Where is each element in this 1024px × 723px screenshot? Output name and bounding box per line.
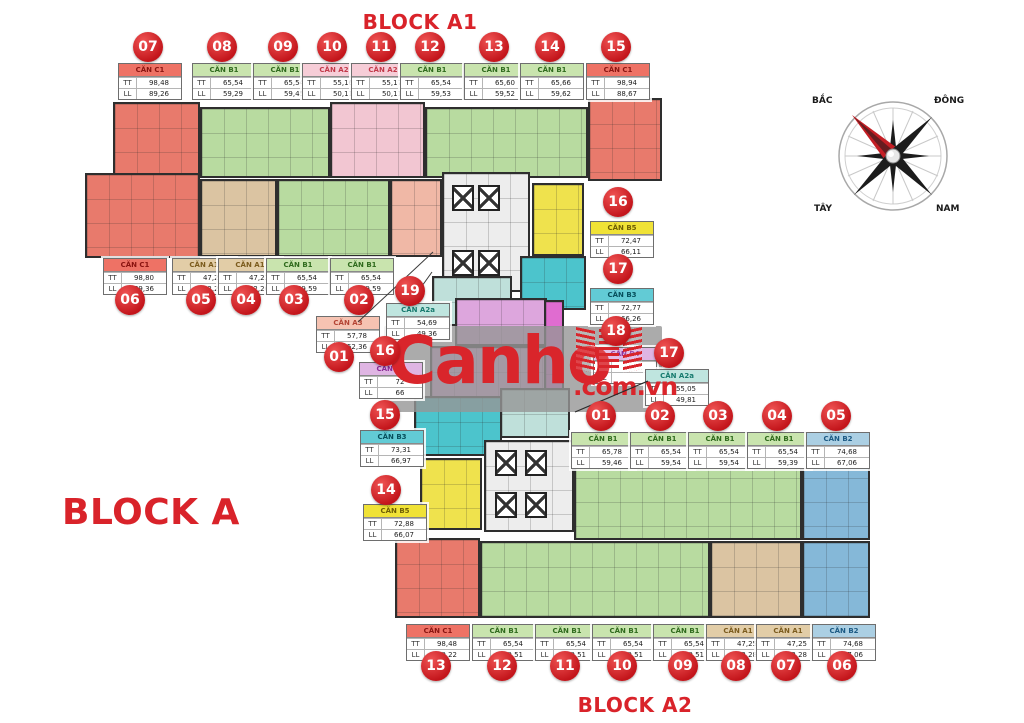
tt-label: TT [757, 639, 775, 649]
ll-row: LL67,06 [807, 457, 869, 468]
unit-number-badge-a1-05: 05 [186, 285, 216, 315]
ll-label: LL [572, 458, 590, 468]
ll-label: LL [748, 458, 766, 468]
unit-name: CĂN A3 [317, 317, 379, 330]
ll-value: 59,46 [590, 458, 634, 468]
apartment-cluster-b5 [532, 183, 584, 256]
tt-value: 65,66 [539, 78, 583, 88]
unit-number-badge-a1-15: 15 [601, 32, 631, 62]
block-a1-title: BLOCK A1 [340, 10, 500, 34]
unit-number-badge-a1-14: 14 [535, 32, 565, 62]
apartment-cluster-a2 [330, 102, 425, 178]
tt-row: TT65,78 [572, 446, 634, 457]
unit-table-a1-08: CĂN B1TT65,54LL59,29 [192, 63, 256, 100]
tt-label: TT [689, 447, 707, 457]
tt-row: TT57,78 [317, 330, 379, 341]
unit-number-badge-a2-02: 02 [645, 401, 675, 431]
tt-row: TT73,31 [361, 444, 423, 455]
unit-name: CĂN B1 [521, 64, 583, 77]
tt-row: TT98,80 [104, 272, 166, 283]
logo-slab [576, 327, 595, 373]
apartment-cluster-b2 [802, 541, 870, 618]
tt-row: TT98,48 [407, 638, 469, 649]
ll-label: LL [631, 458, 649, 468]
unit-number-badge-a2-08: 08 [721, 651, 751, 681]
compass-east-label: ĐÔNG [934, 96, 964, 106]
elevator-shaft [452, 185, 474, 211]
tt-row: TT65,54 [473, 638, 535, 649]
unit-name: CĂN C1 [119, 64, 181, 77]
apartment-cluster-b1 [277, 179, 390, 257]
unit-table-a1-16: CĂN B5TT72,47LL66,11 [590, 221, 654, 258]
unit-number-badge-a2-11: 11 [550, 651, 580, 681]
apartment-cluster-b1 [200, 107, 330, 178]
tt-label: TT [364, 519, 382, 529]
ll-label: LL [361, 456, 379, 466]
tt-row: TT65,66 [521, 77, 583, 88]
ll-value: 88,67 [605, 89, 649, 99]
tt-value: 73,31 [379, 445, 423, 455]
tt-row: TT65,54 [748, 446, 810, 457]
unit-number-badge-a1-10: 10 [317, 32, 347, 62]
apartment-cluster-a1 [710, 541, 802, 618]
apartment-cluster-c1 [395, 538, 480, 618]
tt-label: TT [119, 78, 137, 88]
unit-name: CĂN B1 [593, 625, 655, 638]
tt-value: 65,54 [611, 639, 655, 649]
elevator-shaft [452, 250, 474, 276]
unit-table-a1-15: CĂN C1TT98,94LL88,67 [586, 63, 650, 100]
tt-label: TT [473, 639, 491, 649]
elevator-shaft [478, 185, 500, 211]
tt-label: TT [317, 331, 335, 341]
unit-table-a2-04: CĂN B1TT65,54LL59,39 [747, 432, 811, 469]
ll-value: 59,62 [539, 89, 583, 99]
tt-value: 98,80 [122, 273, 166, 283]
ll-label: LL [193, 89, 211, 99]
unit-table-a1-07: CĂN C1TT98,48LL89,26 [118, 63, 182, 100]
ll-row: LL89,26 [119, 88, 181, 99]
tt-label: TT [707, 639, 725, 649]
tt-value: 65,54 [349, 273, 393, 283]
ll-label: LL [401, 89, 419, 99]
unit-name: CĂN B3 [591, 289, 653, 302]
unit-name: CĂN B1 [748, 433, 810, 446]
tt-label: TT [465, 78, 483, 88]
ll-value: 59,39 [766, 458, 810, 468]
tt-label: TT [104, 273, 122, 283]
unit-name: CĂN A1 [757, 625, 819, 638]
tt-label: TT [536, 639, 554, 649]
tt-label: TT [360, 377, 378, 387]
ll-label: LL [119, 89, 137, 99]
elevator-shaft [525, 492, 547, 518]
unit-name: CĂN B1 [631, 433, 693, 446]
unit-number-badge-a2-05: 05 [821, 401, 851, 431]
unit-number-badge-a1-06: 06 [115, 285, 145, 315]
floorplan-page: BLOCK A1 BLOCK A BLOCK A2 BẮC [0, 0, 1024, 723]
ll-row: LL59,46 [572, 457, 634, 468]
unit-name: CĂN B1 [267, 259, 329, 272]
unit-name: CĂN B1 [401, 64, 463, 77]
unit-number-badge-a1-01: 01 [324, 342, 354, 372]
unit-number-badge-a2-06: 06 [827, 651, 857, 681]
watermark-domain: .com.vn [573, 372, 677, 401]
tt-row: TT65,54 [193, 77, 255, 88]
unit-table-a2-02: CĂN B1TT65,54LL59,54 [630, 432, 694, 469]
unit-number-badge-a1-03: 03 [279, 285, 309, 315]
tt-label: TT [572, 447, 590, 457]
tt-value: 65,54 [707, 447, 751, 457]
tt-value: 57,78 [335, 331, 379, 341]
apartment-cluster-a1 [200, 179, 277, 257]
unit-number-badge-a2-16: 16 [370, 336, 400, 366]
unit-number-badge-a1-09: 09 [268, 32, 298, 62]
ll-value: 89,26 [137, 89, 181, 99]
tt-label: TT [267, 273, 285, 283]
tt-label: TT [807, 447, 825, 457]
ll-row: LL59,52 [465, 88, 527, 99]
tt-label: TT [352, 78, 370, 88]
tt-label: TT [331, 273, 349, 283]
unit-number-badge-a1-13: 13 [479, 32, 509, 62]
unit-table-a1-14: CĂN B1TT65,66LL59,62 [520, 63, 584, 100]
compass-west-label: TÂY [814, 204, 832, 214]
unit-number-badge-a1-12: 12 [415, 32, 445, 62]
apartment-cluster-b1 [425, 107, 588, 178]
tt-label: TT [654, 639, 672, 649]
ll-row: LL59,53 [401, 88, 463, 99]
tt-value: 98,48 [137, 78, 181, 88]
ll-label: LL [521, 89, 539, 99]
unit-name: CĂN B1 [572, 433, 634, 446]
ll-value: 59,53 [419, 89, 463, 99]
tt-label: TT [591, 303, 609, 313]
unit-number-badge-a2-09: 09 [668, 651, 698, 681]
tt-row: TT47,25 [757, 638, 819, 649]
ll-row: LL59,39 [748, 457, 810, 468]
unit-number-badge-a2-15: 15 [370, 400, 400, 430]
unit-number-badge-a1-07: 07 [133, 32, 163, 62]
compass-south-label: NAM [936, 204, 959, 214]
block-a-title: BLOCK A [62, 492, 240, 533]
tt-label: TT [587, 78, 605, 88]
unit-name: CĂN B1 [536, 625, 598, 638]
tt-row: TT98,94 [587, 77, 649, 88]
tt-row: TT65,54 [331, 272, 393, 283]
tt-value: 74,68 [831, 639, 875, 649]
tt-label: TT [173, 273, 191, 283]
apartment-cluster-c1 [85, 173, 200, 258]
tt-value: 65,54 [285, 273, 329, 283]
unit-name: CĂN B1 [331, 259, 393, 272]
compass-north-label: BẮC [812, 96, 832, 106]
unit-number-badge-a2-01: 01 [586, 401, 616, 431]
unit-number-badge-a1-02: 02 [344, 285, 374, 315]
unit-number-badge-a2-03: 03 [703, 401, 733, 431]
unit-name: CĂN B2 [807, 433, 869, 446]
unit-number-badge-a1-16: 16 [603, 187, 633, 217]
unit-name: CĂN C1 [104, 259, 166, 272]
tt-label: TT [593, 639, 611, 649]
tt-row: TT65,54 [631, 446, 693, 457]
tt-row: TT65,54 [401, 77, 463, 88]
unit-name: CĂN B1 [465, 64, 527, 77]
tt-label: TT [407, 639, 425, 649]
unit-number-badge-a1-04: 04 [231, 285, 261, 315]
tt-row: TT72,47 [591, 235, 653, 246]
ll-row: LL59,54 [689, 457, 751, 468]
ll-value: 59,54 [707, 458, 751, 468]
elevator-shaft [495, 492, 517, 518]
tt-row: TT98,48 [119, 77, 181, 88]
unit-name: CĂN B1 [193, 64, 255, 77]
ll-value: 59,29 [211, 89, 255, 99]
apartment-cluster-c1 [113, 102, 200, 178]
tt-value: 65,54 [491, 639, 535, 649]
tt-row: TT65,54 [689, 446, 751, 457]
unit-name: CĂN B5 [364, 505, 426, 518]
unit-number-badge-a2-07: 07 [771, 651, 801, 681]
unit-table-a2-14: CĂN B5TT72,88LL66,07 [363, 504, 427, 541]
unit-name: CĂN B3 [361, 431, 423, 444]
unit-table-a2-01: CĂN B1TT65,78LL59,46 [571, 432, 635, 469]
tt-row: TT74,68 [807, 446, 869, 457]
ll-value: 59,54 [649, 458, 693, 468]
tt-label: TT [254, 78, 272, 88]
unit-name: CĂN C1 [407, 625, 469, 638]
unit-table-a1-12: CĂN B1TT65,54LL59,53 [400, 63, 464, 100]
tt-label: TT [219, 273, 237, 283]
ll-row: LL59,62 [521, 88, 583, 99]
ll-row: LL59,54 [631, 457, 693, 468]
unit-number-badge-a1-11: 11 [366, 32, 396, 62]
tt-value: 72,88 [382, 519, 426, 529]
ll-label: LL [689, 458, 707, 468]
block-a2-title: BLOCK A2 [570, 693, 700, 717]
tt-row: TT72,77 [591, 302, 653, 313]
ll-label: LL [254, 89, 272, 99]
unit-number-badge-a1-17: 17 [603, 254, 633, 284]
ll-label: LL [587, 89, 605, 99]
tt-row: TT65,54 [536, 638, 598, 649]
ll-label: LL [465, 89, 483, 99]
compass-rose: BẮC ĐÔNG TÂY NAM [798, 86, 988, 226]
tt-row: TT72,88 [364, 518, 426, 529]
ll-value: 66,07 [382, 530, 426, 540]
tt-value: 65,54 [419, 78, 463, 88]
unit-name: CĂN B1 [689, 433, 751, 446]
tt-value: 98,94 [605, 78, 649, 88]
tt-value: 65,78 [590, 447, 634, 457]
unit-name: CĂN B2 [813, 625, 875, 638]
tt-value: 65,54 [649, 447, 693, 457]
unit-number-badge-a2-10: 10 [607, 651, 637, 681]
tt-label: TT [748, 447, 766, 457]
ll-value: 67,06 [825, 458, 869, 468]
tt-row: TT65,54 [593, 638, 655, 649]
tt-value: 72,77 [609, 303, 653, 313]
unit-name: CĂN B5 [591, 222, 653, 235]
unit-name: CĂN B1 [473, 625, 535, 638]
elevator-shaft [495, 450, 517, 476]
tt-label: TT [303, 78, 321, 88]
unit-number-badge-a2-14: 14 [371, 475, 401, 505]
tt-label: TT [521, 78, 539, 88]
unit-number-badge-a2-17: 17 [654, 338, 684, 368]
elevator-shaft [525, 450, 547, 476]
ll-label: LL [360, 388, 378, 398]
unit-number-badge-a1-08: 08 [207, 32, 237, 62]
tt-label: TT [631, 447, 649, 457]
tt-label: TT [193, 78, 211, 88]
unit-number-badge-a1-19: 19 [395, 276, 425, 306]
tt-value: 65,54 [766, 447, 810, 457]
unit-number-badge-a2-04: 04 [762, 401, 792, 431]
tt-value: 72,47 [609, 236, 653, 246]
ll-label: LL [303, 89, 321, 99]
unit-number-badge-a2-12: 12 [487, 651, 517, 681]
ll-row: LL66,07 [364, 529, 426, 540]
tt-label: TT [591, 236, 609, 246]
ll-label: LL [591, 247, 609, 257]
apartment-cluster-a3 [390, 179, 442, 257]
unit-table-a1-13: CĂN B1TT65,60LL59,52 [464, 63, 528, 100]
tt-value: 98,48 [425, 639, 469, 649]
tt-label: TT [361, 445, 379, 455]
apartment-cluster-b5 [420, 458, 482, 530]
ll-row: LL59,29 [193, 88, 255, 99]
tt-row: TT65,54 [267, 272, 329, 283]
ll-value: 66,97 [379, 456, 423, 466]
tt-row: TT74,68 [813, 638, 875, 649]
tt-label: TT [813, 639, 831, 649]
unit-table-a2-15: CĂN B3TT73,31LL66,97 [360, 430, 424, 467]
tt-value: 74,68 [825, 447, 869, 457]
unit-name: CĂN A2a [387, 304, 449, 317]
ll-label: LL [352, 89, 370, 99]
apartment-cluster-c1 [588, 98, 662, 181]
ll-row: LL66,97 [361, 455, 423, 466]
ll-label: LL [807, 458, 825, 468]
unit-table-a2-03: CĂN B1TT65,54LL59,54 [688, 432, 752, 469]
unit-number-badge-a2-13: 13 [421, 651, 451, 681]
tt-label: TT [401, 78, 419, 88]
ll-row: LL88,67 [587, 88, 649, 99]
tt-value: 65,54 [211, 78, 255, 88]
apartment-cluster-b1 [480, 541, 710, 618]
ll-label: LL [364, 530, 382, 540]
elevator-shaft [478, 250, 500, 276]
unit-name: CĂN C1 [587, 64, 649, 77]
unit-table-a2-05: CĂN B2TT74,68LL67,06 [806, 432, 870, 469]
tt-row: TT65,60 [465, 77, 527, 88]
unit-number-badge-a1-18: 18 [601, 316, 631, 346]
